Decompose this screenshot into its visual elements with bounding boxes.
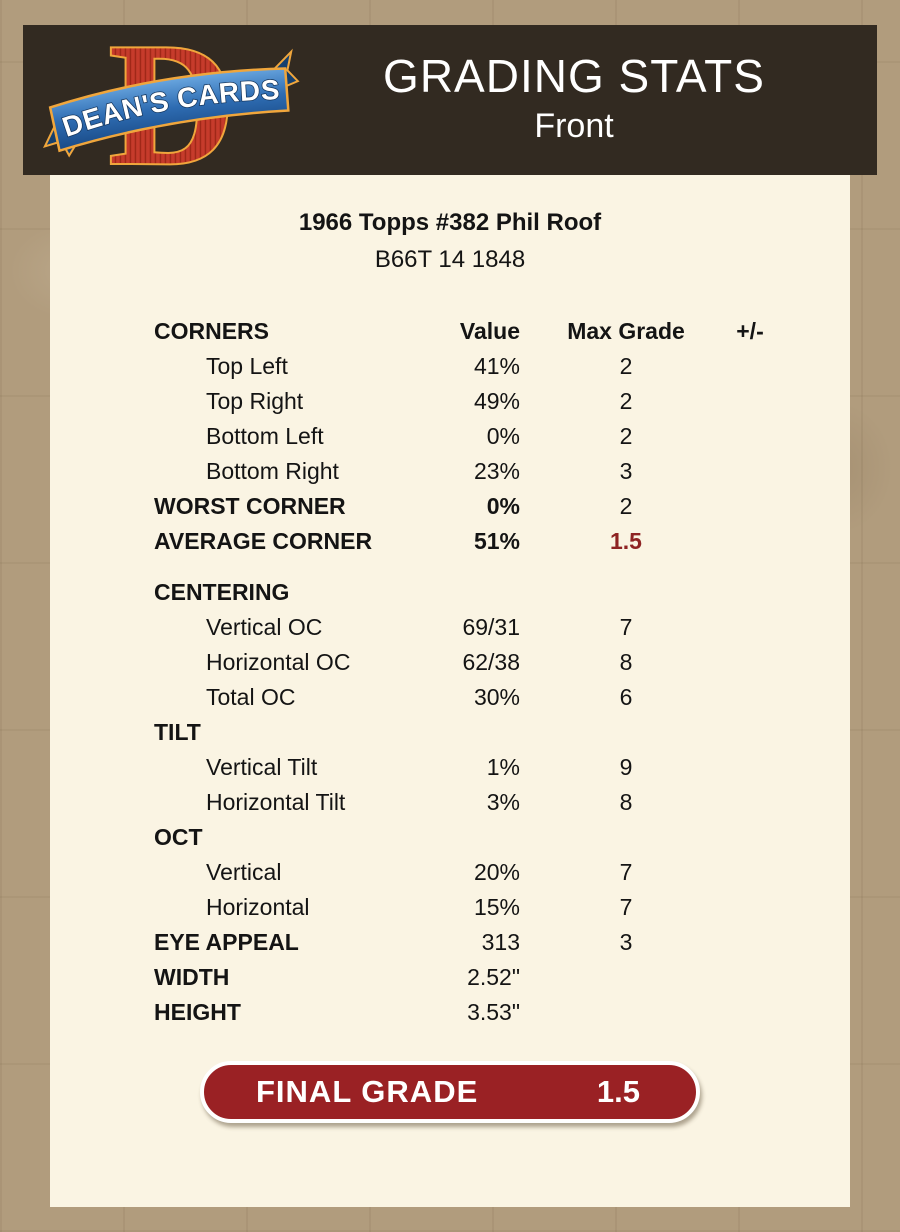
row-value: 313	[450, 925, 520, 960]
section-label: TILT	[154, 715, 450, 750]
row-label: Top Right	[154, 384, 450, 419]
final-grade-button[interactable]: FINAL GRADE 1.5	[200, 1061, 700, 1123]
table-row-top-right: Top Right 49% 2	[154, 384, 850, 419]
row-max-grade: 2	[520, 384, 732, 419]
table-row-horizontal-oc: Horizontal OC 62/38 8	[154, 645, 850, 680]
row-plus-minus	[732, 610, 768, 645]
page-subtitle: Front	[305, 108, 843, 145]
row-max-grade: 3	[520, 454, 732, 489]
row-value: 3%	[450, 785, 520, 820]
section-label: OCT	[154, 820, 450, 855]
header-bar: D DEAN'S CARDS GRADING STATS Front	[23, 25, 877, 175]
row-max-grade	[520, 960, 732, 995]
row-value: 62/38	[450, 645, 520, 680]
row-value	[450, 715, 520, 750]
row-max-grade	[520, 820, 732, 855]
stats-table: CORNERS Value Max Grade +/- Top Left 41%…	[154, 314, 850, 1030]
table-header-row: CORNERS Value Max Grade +/-	[154, 314, 850, 349]
row-value	[450, 575, 520, 610]
row-max-grade: 2	[520, 489, 732, 524]
row-plus-minus	[732, 645, 768, 680]
row-label: Horizontal	[154, 890, 450, 925]
row-max-grade: 1.5	[520, 524, 732, 559]
column-header-max-grade: Max Grade	[520, 314, 732, 349]
row-max-grade: 2	[520, 349, 732, 384]
table-section-oct: OCT	[154, 820, 850, 855]
row-value: 20%	[450, 855, 520, 890]
card-title: 1966 Topps #382 Phil Roof	[50, 209, 850, 237]
table-section-centering: CENTERING	[154, 575, 850, 610]
final-grade-value: 1.5	[597, 1074, 696, 1110]
row-label: Vertical	[154, 855, 450, 890]
table-row-bottom-left: Bottom Left 0% 2	[154, 419, 850, 454]
row-plus-minus	[732, 960, 768, 995]
row-plus-minus	[732, 995, 768, 1030]
row-max-grade	[520, 715, 732, 750]
row-label: WORST CORNER	[154, 489, 450, 524]
row-value: 69/31	[450, 610, 520, 645]
row-value: 23%	[450, 454, 520, 489]
row-max-grade: 3	[520, 925, 732, 960]
row-plus-minus	[732, 524, 768, 559]
column-header-corners: CORNERS	[154, 314, 450, 349]
table-row-horizontal-tilt: Horizontal Tilt 3% 8	[154, 785, 850, 820]
table-section-tilt: TILT	[154, 715, 850, 750]
row-value: 3.53"	[450, 995, 520, 1030]
row-plus-minus	[732, 750, 768, 785]
table-row-oct-horizontal: Horizontal 15% 7	[154, 890, 850, 925]
row-plus-minus	[732, 489, 768, 524]
column-header-plus-minus: +/-	[732, 314, 768, 349]
header-titles: GRADING STATS Front	[305, 51, 877, 145]
deans-cards-logo: D DEAN'S CARDS	[37, 25, 305, 175]
row-plus-minus	[732, 419, 768, 454]
table-row-width: WIDTH 2.52"	[154, 960, 850, 995]
row-plus-minus	[732, 454, 768, 489]
section-label: CENTERING	[154, 575, 450, 610]
row-max-grade	[520, 995, 732, 1030]
row-value: 30%	[450, 680, 520, 715]
row-max-grade: 7	[520, 610, 732, 645]
row-value: 41%	[450, 349, 520, 384]
row-label: HEIGHT	[154, 995, 450, 1030]
row-value: 15%	[450, 890, 520, 925]
row-plus-minus	[732, 680, 768, 715]
row-plus-minus	[732, 890, 768, 925]
table-row-oct-vertical: Vertical 20% 7	[154, 855, 850, 890]
grading-card: 1966 Topps #382 Phil Roof B66T 14 1848 C…	[50, 175, 850, 1207]
row-value: 0%	[450, 419, 520, 454]
row-value: 51%	[450, 524, 520, 559]
row-label: Top Left	[154, 349, 450, 384]
table-row-vertical-oc: Vertical OC 69/31 7	[154, 610, 850, 645]
row-max-grade	[520, 575, 732, 610]
row-max-grade: 8	[520, 785, 732, 820]
row-label: EYE APPEAL	[154, 925, 450, 960]
row-label: Bottom Left	[154, 419, 450, 454]
row-max-grade: 7	[520, 890, 732, 925]
table-row-average-corner: AVERAGE CORNER 51% 1.5	[154, 524, 850, 559]
row-label: Horizontal OC	[154, 645, 450, 680]
row-plus-minus	[732, 925, 768, 960]
row-plus-minus	[732, 575, 768, 610]
row-label: Bottom Right	[154, 454, 450, 489]
table-row-vertical-tilt: Vertical Tilt 1% 9	[154, 750, 850, 785]
column-header-value: Value	[450, 314, 520, 349]
table-row-eye-appeal: EYE APPEAL 313 3	[154, 925, 850, 960]
final-grade-label: FINAL GRADE	[204, 1074, 478, 1110]
table-row-bottom-right: Bottom Right 23% 3	[154, 454, 850, 489]
row-max-grade: 7	[520, 855, 732, 890]
page-background: { "header": { "title": "GRADING STATS", …	[0, 0, 900, 1232]
row-max-grade: 9	[520, 750, 732, 785]
row-label: AVERAGE CORNER	[154, 524, 450, 559]
page-title: GRADING STATS	[305, 51, 843, 102]
row-label: Horizontal Tilt	[154, 785, 450, 820]
row-label: Vertical OC	[154, 610, 450, 645]
table-row-worst-corner: WORST CORNER 0% 2	[154, 489, 850, 524]
row-plus-minus	[732, 715, 768, 750]
row-label: WIDTH	[154, 960, 450, 995]
row-value	[450, 820, 520, 855]
row-value: 49%	[450, 384, 520, 419]
row-plus-minus	[732, 855, 768, 890]
table-row-height: HEIGHT 3.53"	[154, 995, 850, 1030]
row-plus-minus	[732, 384, 768, 419]
row-label: Vertical Tilt	[154, 750, 450, 785]
card-serial-number: B66T 14 1848	[50, 246, 850, 274]
row-label: Total OC	[154, 680, 450, 715]
row-value: 1%	[450, 750, 520, 785]
table-row-top-left: Top Left 41% 2	[154, 349, 850, 384]
row-max-grade: 6	[520, 680, 732, 715]
row-max-grade: 8	[520, 645, 732, 680]
row-max-grade: 2	[520, 419, 732, 454]
deans-cards-logo-icon: D DEAN'S CARDS	[37, 25, 302, 175]
row-plus-minus	[732, 820, 768, 855]
row-value: 0%	[450, 489, 520, 524]
row-value: 2.52"	[450, 960, 520, 995]
row-plus-minus	[732, 785, 768, 820]
table-row-total-oc: Total OC 30% 6	[154, 680, 850, 715]
row-plus-minus	[732, 349, 768, 384]
